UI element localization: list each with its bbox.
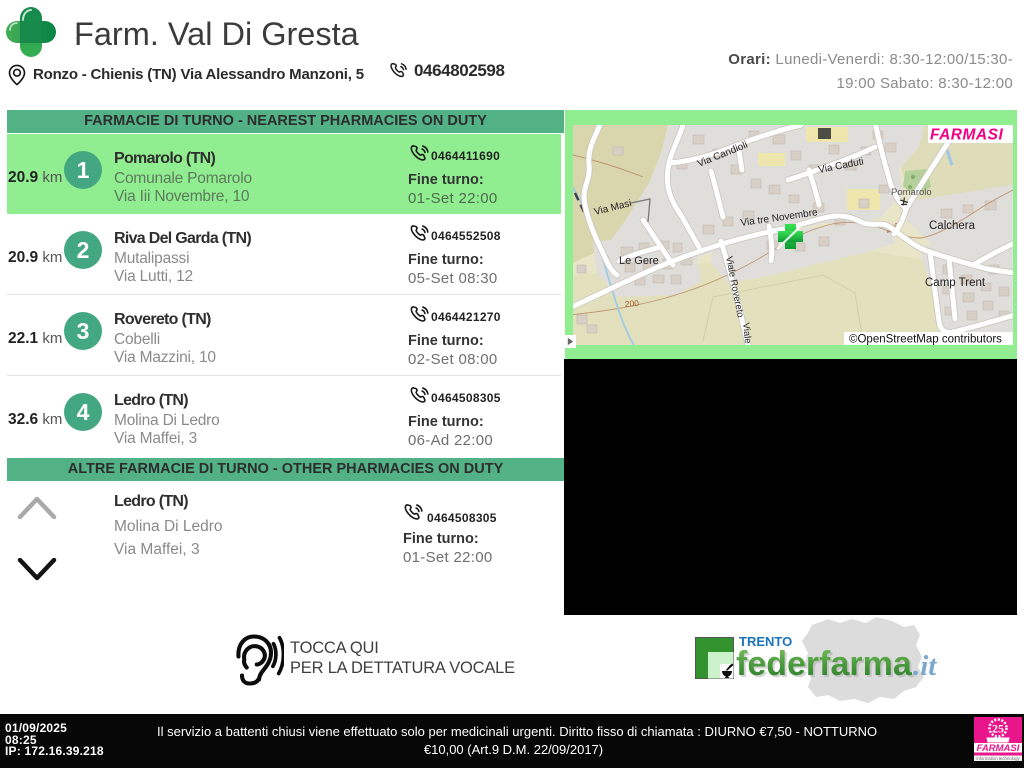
svg-text:Calchera: Calchera xyxy=(929,220,976,232)
svg-text:.it: .it xyxy=(913,650,937,682)
svg-text:FARMASI: FARMASI xyxy=(930,127,1003,144)
svg-text:federfarma: federfarma xyxy=(736,645,913,683)
svg-text:©OpenStreetMap contributors: ©OpenStreetMap contributors xyxy=(849,334,1002,346)
svg-text:25: 25 xyxy=(992,722,1004,736)
svg-text:Viale: Viale xyxy=(740,322,753,344)
svg-text:Le Gere: Le Gere xyxy=(619,255,659,267)
svg-text:200: 200 xyxy=(624,298,639,309)
svg-text:information technology: information technology xyxy=(976,756,1020,761)
svg-text:Pomarolo: Pomarolo xyxy=(891,187,932,198)
svg-text:FARMASI: FARMASI xyxy=(977,743,1020,754)
svg-text:Camp Trent: Camp Trent xyxy=(925,277,986,289)
